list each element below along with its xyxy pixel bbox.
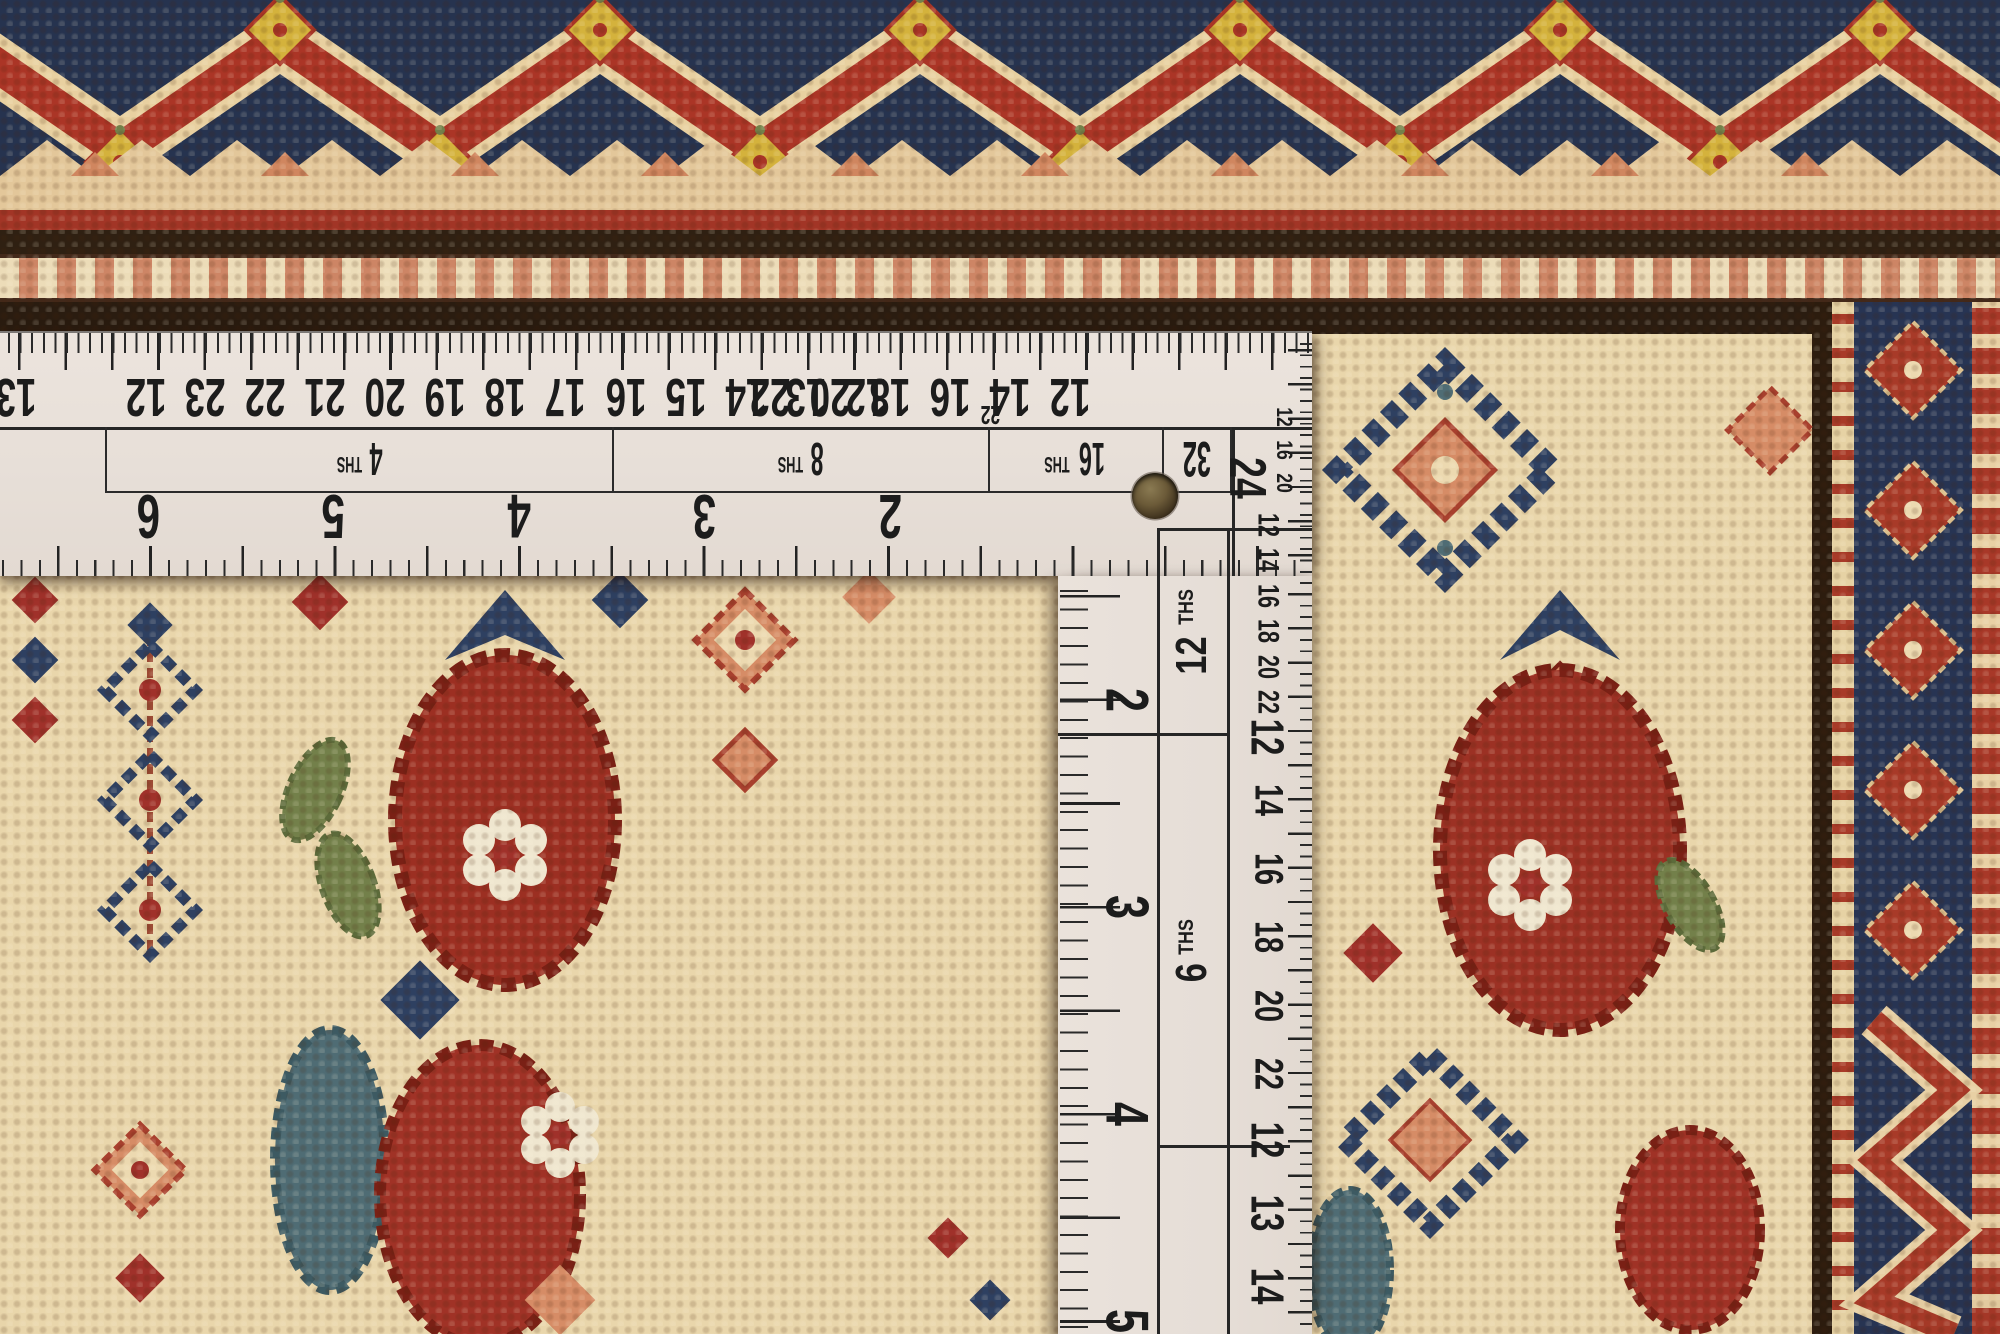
ruler-section-12ths: 12THS: [1157, 590, 1227, 680]
red-medallion-motif: [395, 590, 615, 985]
scale-number: 12: [1253, 513, 1283, 537]
scale-number: 22: [245, 370, 286, 424]
green-leaf-motif: [269, 730, 391, 945]
v-scale-12-end-number: 12: [1244, 714, 1292, 760]
red-medallion-motif-right: [1440, 590, 1736, 1030]
scale-number: 12: [126, 370, 167, 424]
scale-number: 2: [1097, 688, 1157, 712]
section-label-number: 6: [1170, 963, 1214, 982]
ruler-section-8ths: 8THS: [612, 427, 988, 493]
ruler-section-4ths: 4THS: [105, 427, 612, 493]
section-label-suffix: THS: [1045, 453, 1070, 475]
section-label-suffix: THS: [778, 453, 803, 475]
scale-number: 5: [1097, 1309, 1157, 1333]
navy-serrated-diamond-motif-2: [1345, 1055, 1760, 1330]
scale-number: 3: [1097, 895, 1157, 919]
v-scale-inch-numbers: 2345: [1094, 670, 1160, 1334]
scale-number: 12: [1245, 1122, 1291, 1159]
ruler-inner-line-2: [1227, 528, 1230, 1334]
ruler-hole: [1132, 473, 1178, 519]
bottom-cluster-motif: [275, 958, 599, 1334]
scale-number: 17: [545, 370, 586, 424]
ruler-corner-edge-numbers: 121620: [1266, 406, 1302, 494]
scale-number: 22: [1248, 1058, 1288, 1090]
rug-photo: 1312 232221201918171615141312 2220181614…: [0, 0, 2000, 1334]
border-hook-chain-motif: [1865, 322, 1961, 1334]
scale-number: 14: [1245, 1268, 1291, 1305]
scale-number: 4: [507, 484, 530, 546]
scale-number: 21: [305, 370, 346, 424]
scale-number: 20: [810, 370, 851, 424]
section-label-number: 12: [1170, 636, 1214, 674]
scale-number: 5: [322, 484, 345, 546]
scale-number: 2: [878, 484, 901, 546]
ruler-section-6ths: 6THS: [1157, 905, 1227, 985]
scale-number: 12: [1273, 407, 1295, 427]
scale-number: 4: [1097, 1102, 1157, 1126]
scale-number: 15: [665, 370, 706, 424]
section-label-number: 32: [1183, 434, 1211, 484]
section-label-number: 4: [369, 436, 382, 482]
scale-number: 18: [1253, 619, 1283, 643]
h-scale-16ths-numbers: 222018161412: [740, 370, 1000, 424]
h-scale-32nds-number: 22: [981, 402, 1001, 428]
scale-number: 16: [605, 370, 646, 424]
salmon-cross-motif: [696, 591, 795, 790]
scale-number: 3: [693, 484, 716, 546]
mini-diamond-column-motif: [10, 575, 61, 746]
scale-number: 18: [485, 370, 526, 424]
scale-number: 22: [750, 370, 791, 424]
scale-number: 16: [1248, 852, 1288, 884]
section-label-suffix: THS: [337, 453, 362, 475]
scale-number: 18: [870, 370, 911, 424]
ruler-corner-24-label: 24: [1222, 452, 1272, 504]
section-label-number: 8: [811, 436, 824, 482]
scale-number: 12: [1050, 370, 1091, 424]
v-scale-bottom-numbers: 121314: [1244, 1117, 1292, 1309]
scale-number: 20: [1248, 989, 1288, 1021]
h-scale-4ths-numbers: 1312: [0, 370, 176, 424]
v-scale-12ths-numbers: 121416182022: [1246, 510, 1290, 717]
ruler-top-ticks: [0, 333, 1312, 371]
scale-number: 12: [1245, 719, 1291, 756]
section-label-number: 16: [1079, 436, 1105, 482]
scale-number: 19: [425, 370, 466, 424]
scale-number: 23: [185, 370, 226, 424]
h-scale-inch-numbers: 65432: [131, 484, 907, 546]
salmon-cross-motif-2: [95, 1125, 186, 1305]
scale-number: 6: [137, 484, 160, 546]
h-scale-8ths-numbers: 232221201918171615141312: [175, 370, 745, 424]
lattice-stem-motif: [105, 602, 196, 960]
scale-number: 16: [1253, 584, 1283, 608]
v-scale-6ths-numbers: 1416182022: [1245, 780, 1291, 1094]
section-label-suffix: THS: [1176, 919, 1197, 955]
scale-number: 20: [1253, 655, 1283, 679]
section-label-suffix: THS: [1176, 589, 1197, 625]
scale-number: 16: [1273, 440, 1295, 460]
scale-number: 14: [1248, 784, 1288, 816]
scale-number: 14: [1253, 548, 1283, 572]
scale-number: 16: [930, 370, 971, 424]
scale-number: 13: [0, 370, 36, 424]
scale-number: 13: [1245, 1195, 1291, 1232]
scale-number: 20: [1273, 473, 1295, 493]
scale-number: 18: [1248, 921, 1288, 953]
navy-serrated-diamond-motif: [1339, 364, 1551, 576]
scale-number: 20: [365, 370, 406, 424]
scale-number: 22: [1253, 690, 1283, 714]
rug-motifs: [0, 0, 2000, 1334]
